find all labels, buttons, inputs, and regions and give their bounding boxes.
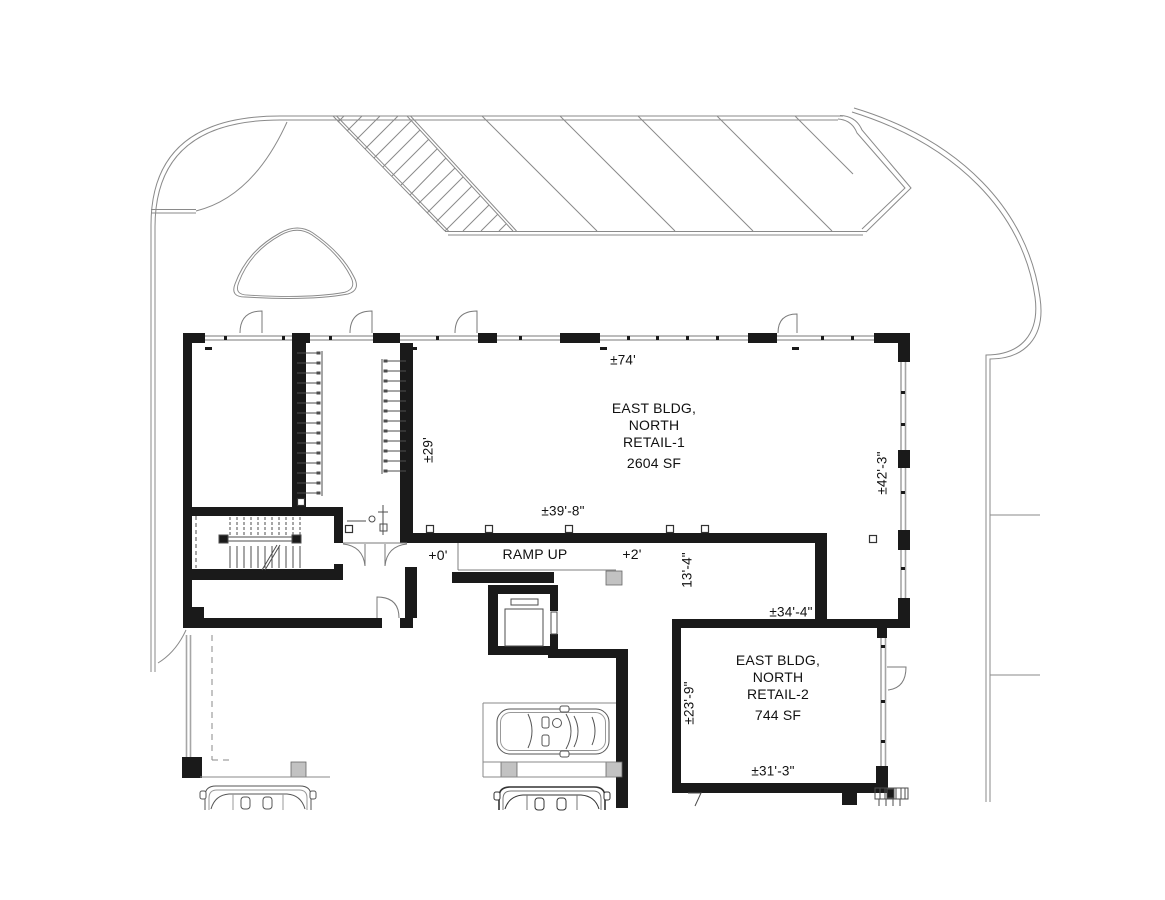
dim-retail1-step-height: 13'-4"	[680, 552, 695, 588]
door-hardware-symbol	[347, 505, 388, 535]
room-name-line: NORTH	[612, 417, 696, 434]
room-name-line: RETAIL-1	[612, 434, 696, 451]
ramp-label: RAMP UP	[503, 546, 568, 562]
bike-racks	[297, 351, 406, 496]
corner-column	[182, 757, 202, 778]
car-front-partial	[494, 787, 610, 810]
stairs	[196, 516, 301, 570]
room-area: 744 SF	[736, 707, 820, 724]
doors	[240, 311, 906, 690]
parking-stall-lines	[482, 116, 853, 231]
ramp-start-elevation: +0'	[428, 547, 447, 563]
room-name-line: NORTH	[736, 669, 820, 686]
retail-1-label: EAST BLDG, NORTH RETAIL-1 2604 SF	[612, 400, 696, 472]
dim-retail1-left-height: ±29'	[421, 437, 436, 463]
dim-retail2-bottom-width: ±31'-3"	[751, 764, 794, 779]
elevator	[488, 585, 558, 655]
dim-retail1-interior-width: ±39'-8"	[541, 504, 584, 519]
dim-retail1-right-height: ±42'-3"	[875, 451, 890, 494]
dim-retail1-bottom-width: ±34'-4"	[769, 605, 812, 620]
car-top-view	[497, 706, 609, 757]
room-area: 2604 SF	[612, 455, 696, 472]
crosswalk-hatch	[333, 116, 517, 231]
landscape-island	[234, 228, 357, 298]
cars	[200, 706, 610, 810]
floor-plan-sheet: ±74' EAST BLDG, NORTH RETAIL-1 2604 SF ±…	[0, 0, 1165, 900]
car-front-partial	[200, 786, 316, 810]
ramp-end-elevation: +2'	[622, 546, 641, 562]
floor-plan-canvas	[0, 0, 1165, 900]
retail-2-label: EAST BLDG, NORTH RETAIL-2 744 SF	[736, 652, 820, 724]
room-name-line: EAST BLDG,	[736, 652, 820, 669]
room-name-line: RETAIL-2	[736, 686, 820, 703]
dim-retail2-left-height: ±23'-9"	[682, 681, 697, 724]
room-name-line: EAST BLDG,	[612, 400, 696, 417]
dim-retail1-top-width: ±74'	[610, 353, 636, 368]
